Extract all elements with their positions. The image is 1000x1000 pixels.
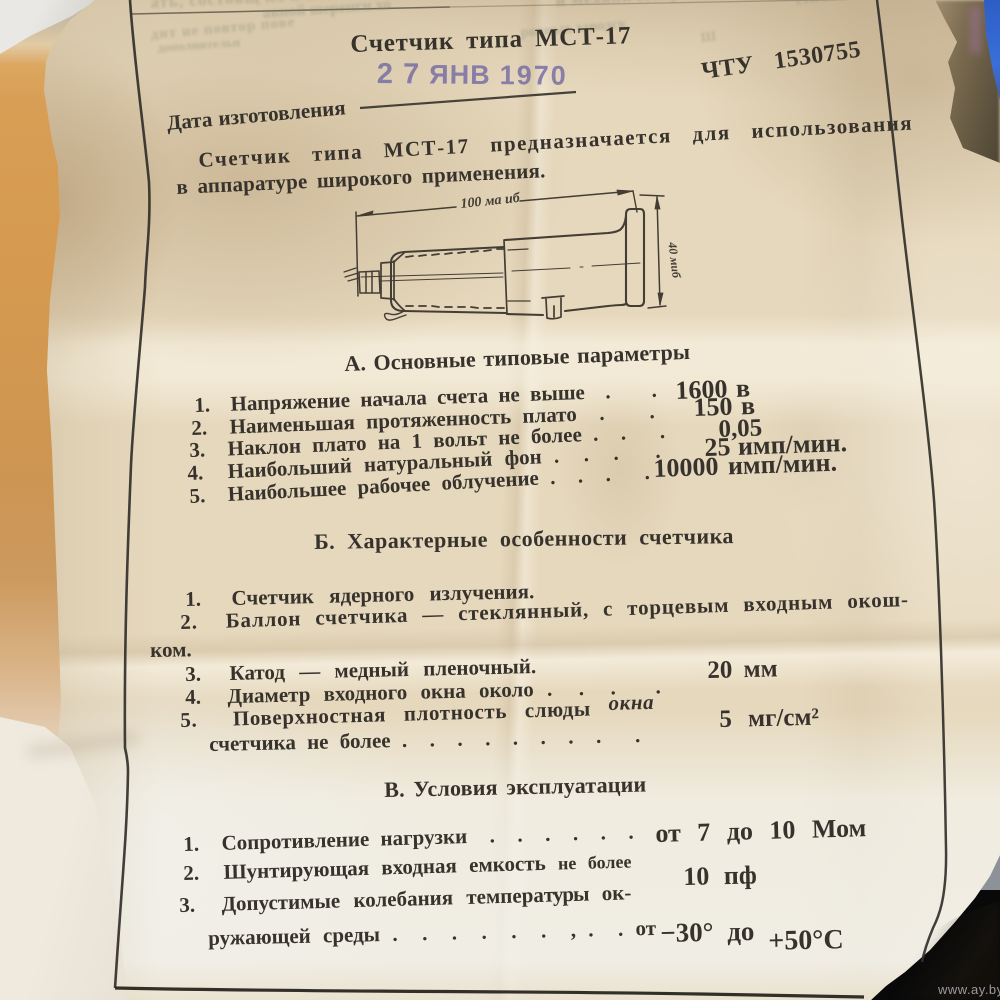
svg-text:100 ма иб: 100 ма иб xyxy=(460,191,522,212)
svg-text:40 миб: 40 миб xyxy=(665,240,684,279)
